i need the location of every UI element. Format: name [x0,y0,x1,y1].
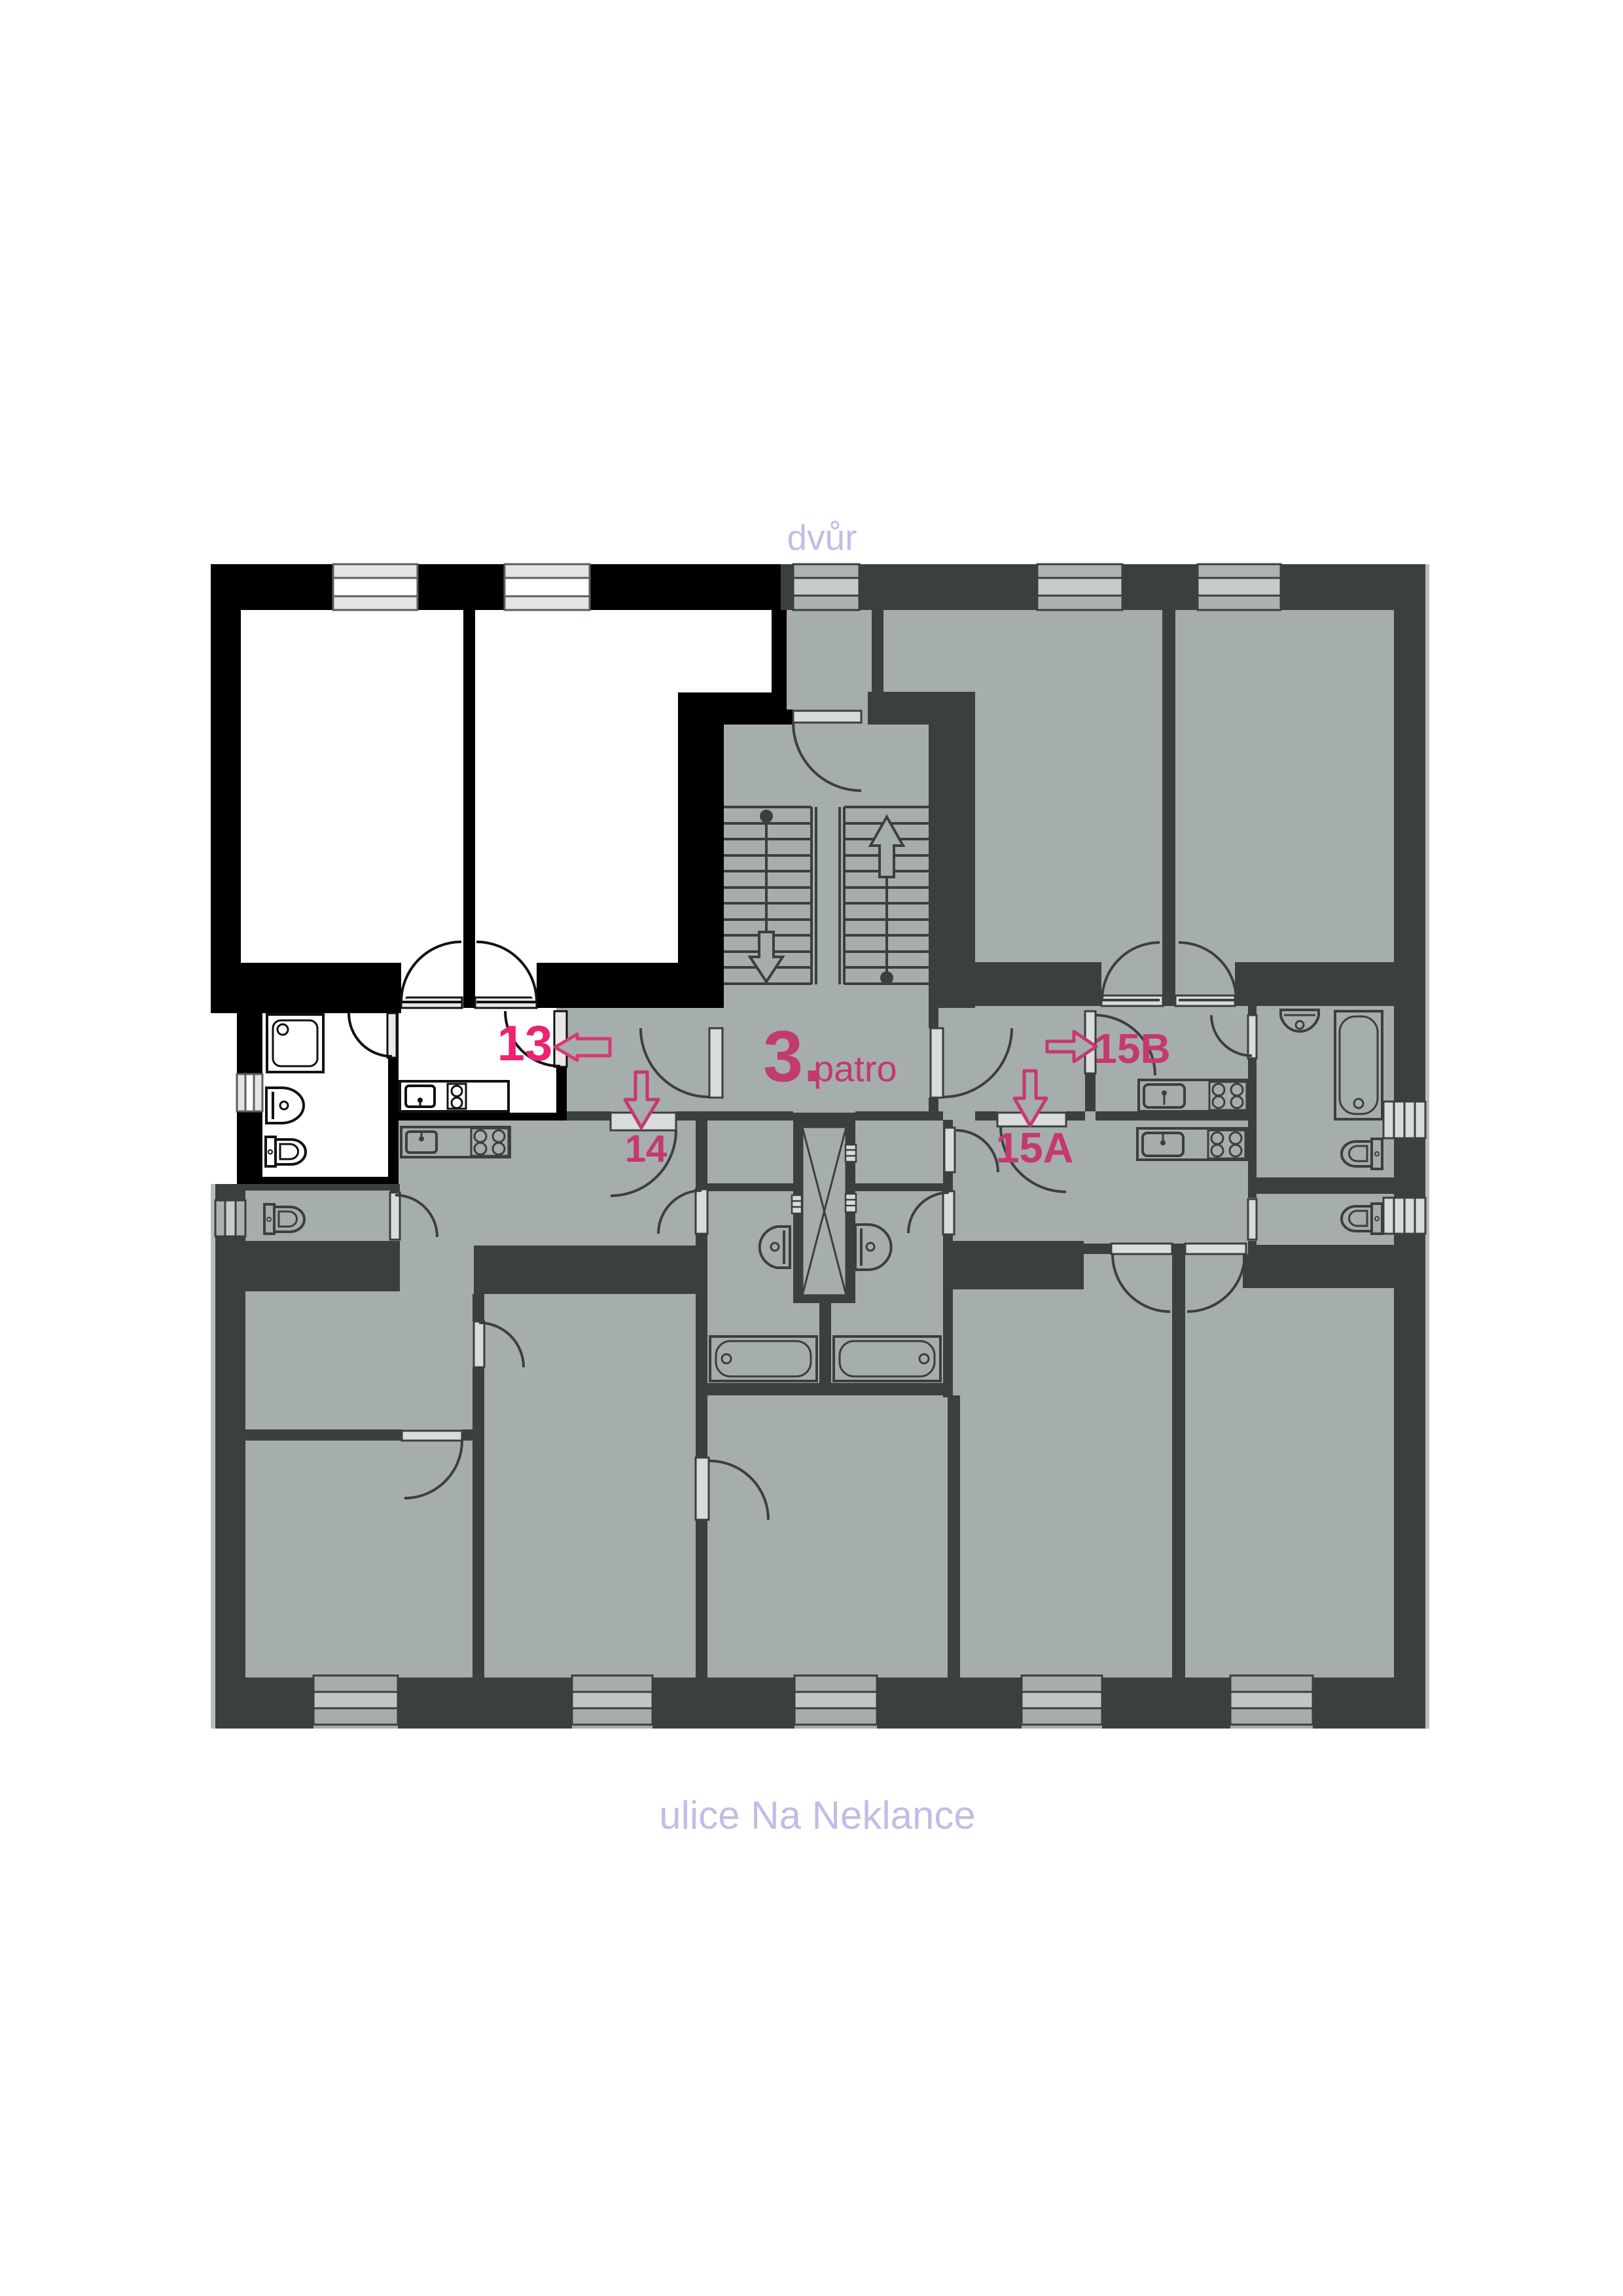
svg-text:13: 13 [497,1016,553,1071]
svg-text:15B: 15B [1094,1025,1170,1072]
svg-text:14: 14 [625,1128,668,1170]
svg-text:patro: patro [813,1048,897,1089]
svg-text:15A: 15A [995,1124,1073,1172]
svg-text:ulice Na Neklance: ulice Na Neklance [659,1793,976,1837]
svg-text:dvůr: dvůr [787,517,857,558]
